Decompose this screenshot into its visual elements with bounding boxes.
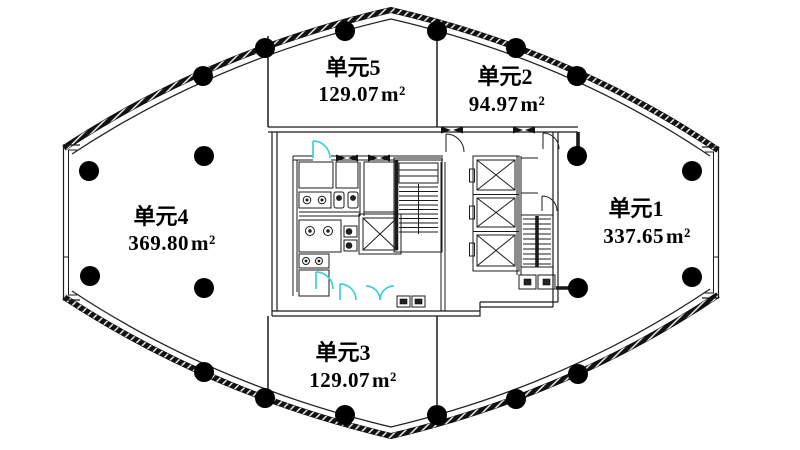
column-dot [567, 66, 587, 86]
door-swing-icon [446, 133, 559, 211]
unit-area: 369.80m² [128, 231, 216, 255]
column-dot [194, 362, 214, 382]
unit-name: 单元2 [477, 64, 532, 89]
unit-label-unit4: 单元4 369.80m² [128, 204, 216, 255]
toilet-stall-icon [299, 220, 357, 252]
unit-name: 单元3 [315, 340, 370, 365]
unit-area: 337.65m² [603, 224, 691, 248]
column-dot [568, 364, 588, 384]
unit-name: 单元4 [133, 204, 188, 229]
column-dot [79, 161, 99, 181]
column-dot [80, 266, 100, 286]
unit-name: 单元5 [325, 55, 380, 80]
column-dot [682, 161, 702, 181]
unit-label-unit1: 单元1 337.65m² [603, 196, 691, 248]
unit-area: 129.07m² [309, 368, 397, 392]
unit-area: 129.07m² [318, 82, 406, 106]
column-dot [506, 38, 526, 58]
column-dot [255, 38, 275, 58]
floor-plan-drawing: 单元5 129.07m² 单元2 94.97m² 单元4 369.80m² 单元… [0, 0, 800, 450]
column-dot [335, 21, 355, 41]
column-dot [427, 405, 447, 425]
urinal-icon [334, 192, 358, 208]
restroom-stall [336, 162, 358, 188]
restroom-stall [299, 162, 333, 188]
doors [313, 127, 559, 301]
stairs-icon [394, 158, 442, 307]
unit-label-unit5: 单元5 129.07m² [318, 55, 406, 106]
column-dot [255, 388, 275, 408]
core-walls [268, 127, 578, 316]
elevator-icon [470, 160, 516, 190]
column-dot [194, 278, 214, 298]
sink-counter-icon [299, 254, 329, 268]
column-dot [682, 267, 702, 287]
stairs-icon [521, 215, 553, 267]
column-dot [193, 66, 213, 86]
sink-counter-icon [299, 192, 331, 208]
column-dot [568, 278, 588, 298]
column-dot [427, 21, 447, 41]
unit-label-unit3: 单元3 129.07m² [309, 340, 397, 392]
right-end-cap [702, 147, 719, 298]
outer-wall-top [64, 10, 718, 150]
left-end-cap [64, 145, 81, 300]
core-room [364, 162, 396, 212]
column-dot [335, 405, 355, 425]
unit-area: 94.97m² [469, 92, 546, 116]
column-dot [194, 146, 214, 166]
east-lobby [517, 156, 555, 289]
elevator-icon [470, 198, 516, 227]
shaft-vent-icon [519, 275, 555, 289]
column-dot [567, 146, 587, 166]
column-dot [506, 389, 526, 409]
elevator-bank [470, 156, 520, 271]
unit-label-unit2: 单元2 94.97m² [469, 64, 546, 116]
elevator-icon [470, 235, 516, 266]
unit-name: 单元1 [608, 196, 663, 221]
